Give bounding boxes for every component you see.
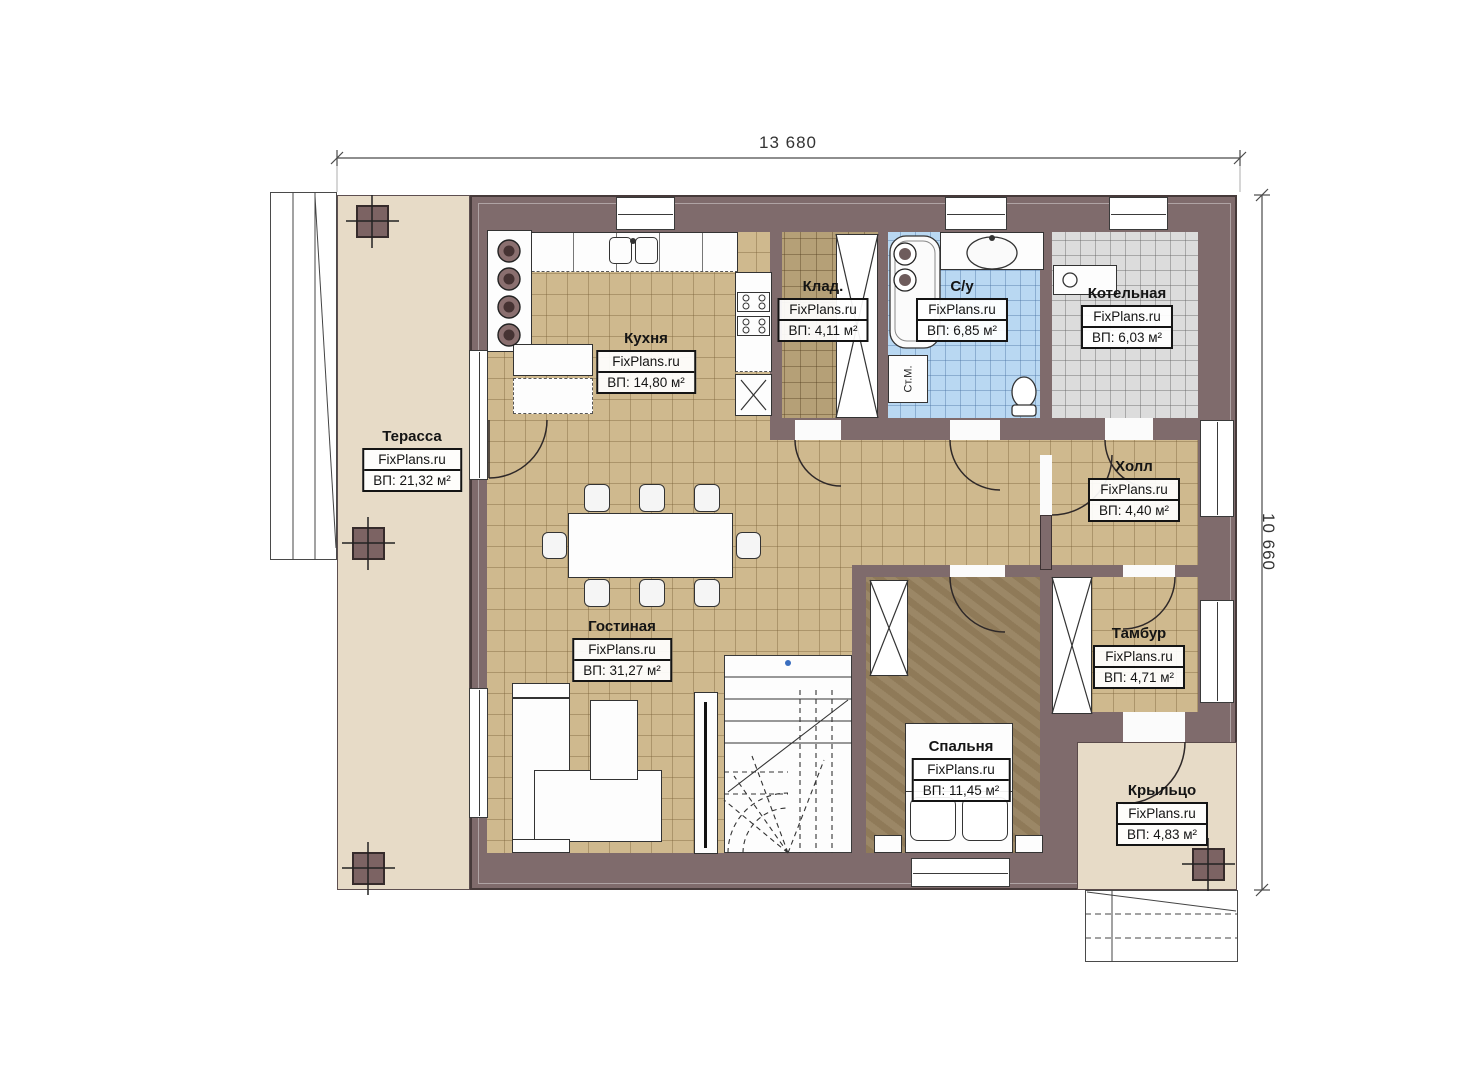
kitchen-oven (737, 292, 770, 312)
dimension-height-label: 10 660 (1258, 513, 1278, 571)
nightstand (1015, 835, 1043, 853)
hall-wall-stub (1040, 515, 1052, 570)
kitchen-living-passage-floor (487, 420, 770, 440)
tv (704, 702, 707, 848)
room-area: ВП: 4,71 м² (1095, 666, 1183, 687)
room-label-kitchen: Кухня FixPlans.ruВП: 14,80 м² (596, 330, 696, 394)
kitchen-stove (487, 230, 532, 352)
terrace-column-middle (352, 527, 385, 560)
room-name: Тамбур (1093, 625, 1185, 642)
room-name: С/у (916, 278, 1008, 295)
bathroom-door-opening (950, 420, 1000, 440)
brand-watermark: FixPlans.ru (1083, 307, 1171, 326)
room-label-hall: Холл FixPlans.ruВП: 4,40 м² (1088, 458, 1180, 522)
dining-chair (542, 532, 567, 559)
terrace-door (469, 350, 488, 480)
sofa-chaise (534, 770, 662, 842)
room-area: ВП: 4,40 м² (1090, 499, 1178, 520)
kitchen-sink-left (609, 237, 632, 264)
room-name: Кухня (596, 330, 696, 347)
room-name: Спальня (912, 738, 1011, 755)
room-area: ВП: 6,03 м² (1083, 326, 1171, 347)
bed-pillow (910, 797, 956, 841)
dining-chair (639, 484, 665, 512)
kitchen-window (616, 197, 675, 230)
kitchen-sink-right (635, 237, 658, 264)
room-label-bathroom: С/у FixPlans.ruВП: 6,85 м² (916, 278, 1008, 342)
bedroom-door-opening (950, 565, 1005, 577)
hall-door-opening (1040, 455, 1052, 515)
room-name: Холл (1088, 458, 1180, 475)
brand-watermark: FixPlans.ru (574, 640, 670, 659)
room-label-terrace: Терасса FixPlans.ruВП: 21,32 м² (362, 428, 462, 492)
kitchen-base-cabinet (735, 374, 772, 416)
dining-chair (736, 532, 761, 559)
dining-chair (694, 484, 720, 512)
porch-steps (1085, 890, 1238, 962)
hall-window (1200, 420, 1234, 517)
coffee-table (590, 700, 638, 780)
nightstand (874, 835, 902, 853)
dining-chair (694, 579, 720, 607)
room-area: ВП: 14,80 м² (598, 371, 694, 392)
room-area: ВП: 31,27 м² (574, 659, 670, 680)
washing-machine-label: Ст.М. (903, 365, 915, 392)
room-area: ВП: 4,83 м² (1118, 823, 1206, 844)
bedroom-window (911, 858, 1010, 887)
dining-chair (584, 579, 610, 607)
brand-watermark: FixPlans.ru (779, 300, 866, 319)
floor-plan-canvas: 13 680 10 660 (0, 0, 1473, 1080)
terrace-column-top (356, 205, 389, 238)
living-window (469, 688, 488, 818)
room-name: Котельная (1081, 285, 1173, 302)
bed-pillow (962, 797, 1008, 841)
dining-chair (584, 484, 610, 512)
brand-watermark: FixPlans.ru (1090, 480, 1178, 499)
room-label-vestibule: Тамбур FixPlans.ruВП: 4,71 м² (1093, 625, 1185, 689)
room-label-boiler: Котельная FixPlans.ruВП: 6,03 м² (1081, 285, 1173, 349)
porch-column (1192, 848, 1225, 881)
room-name: Клад. (777, 278, 868, 295)
room-label-bedroom: Спальня FixPlans.ruВП: 11,45 м² (912, 738, 1011, 802)
brand-watermark: FixPlans.ru (1118, 804, 1206, 823)
bathroom-sink-counter (940, 232, 1044, 270)
boiler-window (1109, 197, 1168, 230)
room-name: Гостиная (572, 618, 672, 635)
brand-watermark: FixPlans.ru (1095, 647, 1183, 666)
room-label-storage: Клад. FixPlans.ruВП: 4,11 м² (777, 278, 868, 342)
dining-table (568, 513, 733, 578)
room-name: Терасса (362, 428, 462, 445)
kitchen-upper-cabinets (513, 378, 593, 414)
room-label-porch: Крыльцо FixPlans.ruВП: 4,83 м² (1116, 782, 1208, 846)
room-label-living: Гостиная FixPlans.ruВП: 31,27 м² (572, 618, 672, 682)
room-area: ВП: 11,45 м² (914, 779, 1009, 800)
kitchen-island-counter (513, 344, 593, 376)
terrace-column-bottom (352, 852, 385, 885)
brand-watermark: FixPlans.ru (918, 300, 1006, 319)
staircase-area (724, 655, 852, 853)
sofa-armrest (512, 683, 570, 698)
dimension-width-label: 13 680 (759, 133, 817, 153)
entrance-door-opening (1123, 712, 1185, 742)
terrace-steps (270, 192, 337, 560)
bedroom-closet (870, 580, 908, 676)
dining-chair (639, 579, 665, 607)
kitchen-microwave (737, 316, 770, 336)
sofa-armrest (512, 839, 570, 853)
room-area: ВП: 4,11 м² (779, 319, 866, 340)
vestibule-door-opening (1123, 565, 1175, 577)
room-name: Крыльцо (1116, 782, 1208, 799)
vestibule-window (1200, 600, 1234, 703)
boiler-door-opening (1105, 418, 1153, 440)
room-area: ВП: 21,32 м² (364, 469, 460, 490)
bathroom-window (945, 197, 1007, 230)
storage-door-opening (795, 420, 841, 440)
brand-watermark: FixPlans.ru (914, 760, 1009, 779)
brand-watermark: FixPlans.ru (598, 352, 694, 371)
brand-watermark: FixPlans.ru (364, 450, 460, 469)
room-area: ВП: 6,85 м² (918, 319, 1006, 340)
vestibule-closet (1052, 577, 1092, 714)
